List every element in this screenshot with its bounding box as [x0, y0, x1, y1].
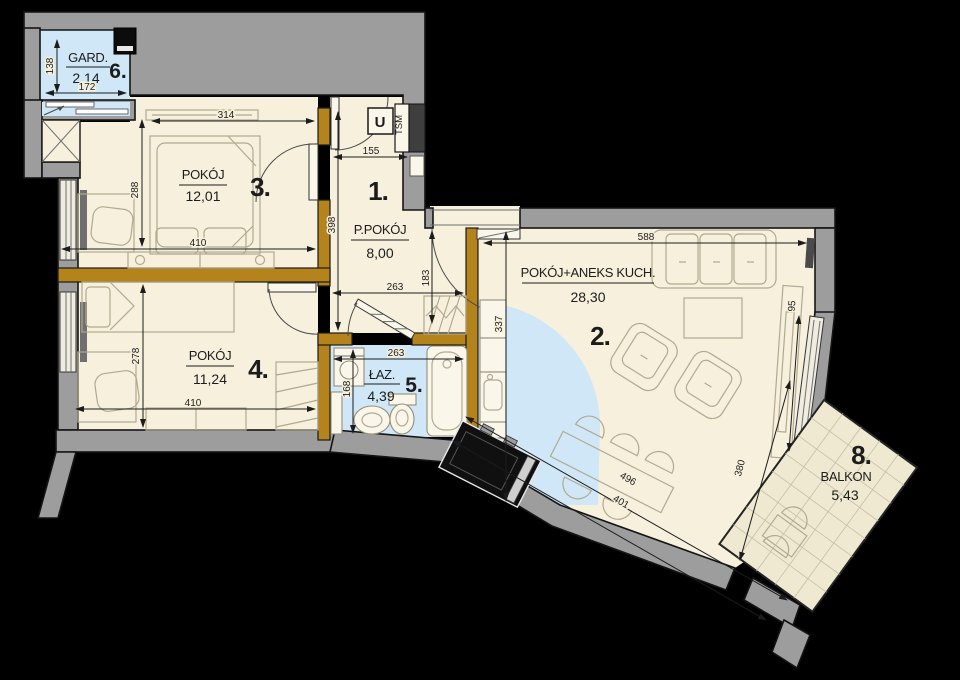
sink — [354, 406, 390, 434]
dim-bath-height: 168 — [342, 380, 353, 397]
dim-hall-width: 263 — [387, 282, 404, 293]
dim-r4-bottom: 410 — [185, 398, 202, 409]
partition-r3-top — [318, 108, 330, 145]
floor-plan-drawing: U TSM — [0, 0, 960, 680]
dim-r2-top: 588 — [638, 232, 655, 243]
dim-bath-width: 263 — [388, 348, 405, 359]
room6-num: 6. — [109, 60, 127, 83]
partition-bath-top-right — [412, 333, 468, 345]
bath-shelf — [331, 392, 342, 434]
room2-area: 28,30 — [570, 289, 605, 305]
dim-r4-left: 278 — [131, 347, 142, 364]
floor-plan-canvas: U TSM — [0, 0, 960, 680]
wall-right-upper — [815, 228, 835, 314]
dim-r3-left: 288 — [130, 181, 141, 198]
dim-r1-left: 398 — [327, 216, 338, 233]
dim-gard-height: 138 — [45, 57, 56, 74]
room8-area: 5,43 — [831, 487, 858, 503]
room4-name: POKÓJ — [189, 348, 232, 363]
dim-r1-entry: 183 — [421, 269, 432, 286]
room1-area: 8,00 — [366, 245, 393, 261]
utility-u-label: U — [375, 114, 386, 131]
room5-num: 5. — [405, 374, 423, 397]
room2-name: POKÓJ+ANEKS KUCH. — [521, 265, 656, 280]
shaft-black — [114, 28, 136, 54]
wall-shaft-bottom — [42, 162, 80, 178]
wall-gard-left — [24, 28, 40, 105]
window-room3 — [60, 180, 76, 260]
utility-tsm-label: TSM — [394, 115, 405, 135]
dim-kitchen-height: 337 — [494, 315, 505, 332]
room8-name: BALKON — [821, 469, 872, 484]
room3-area: 12,01 — [185, 188, 220, 204]
dim-r3-top: 314 — [218, 110, 235, 121]
room8-num: 8. — [851, 440, 871, 470]
room1-name: P.POKÓJ — [354, 222, 407, 237]
room2-num: 2. — [590, 321, 610, 351]
toilet-bowl — [390, 404, 414, 434]
partition-r3-r4 — [58, 268, 330, 282]
room5-area: 4,39 — [367, 388, 394, 404]
room3-name: POKÓJ — [182, 167, 225, 182]
wall-bottom-room4 — [56, 430, 336, 452]
room5-name: ŁAZ. — [369, 367, 395, 382]
room4-area: 11,24 — [193, 371, 227, 387]
room6-name: GARD. — [68, 50, 108, 65]
partition-kitchen — [466, 228, 478, 440]
room4-num: 4. — [248, 354, 268, 384]
window-room4 — [60, 292, 76, 372]
dim-r3-bottom: 410 — [190, 238, 207, 249]
partition-bath-left — [318, 336, 330, 440]
shaft-x — [42, 120, 80, 162]
dim-r2-right: 95 — [787, 300, 799, 312]
room1-num: 1. — [368, 176, 388, 206]
radiator-room3 — [80, 190, 87, 250]
gard-sliding-door — [42, 102, 130, 116]
partition-bath-top-left — [318, 333, 352, 345]
wall-room2-top — [520, 208, 835, 228]
dim-gard-width: 172 — [79, 82, 96, 93]
wall-left-step — [24, 100, 42, 178]
room3-num: 3. — [250, 172, 270, 202]
dim-r1-top: 155 — [363, 146, 380, 157]
